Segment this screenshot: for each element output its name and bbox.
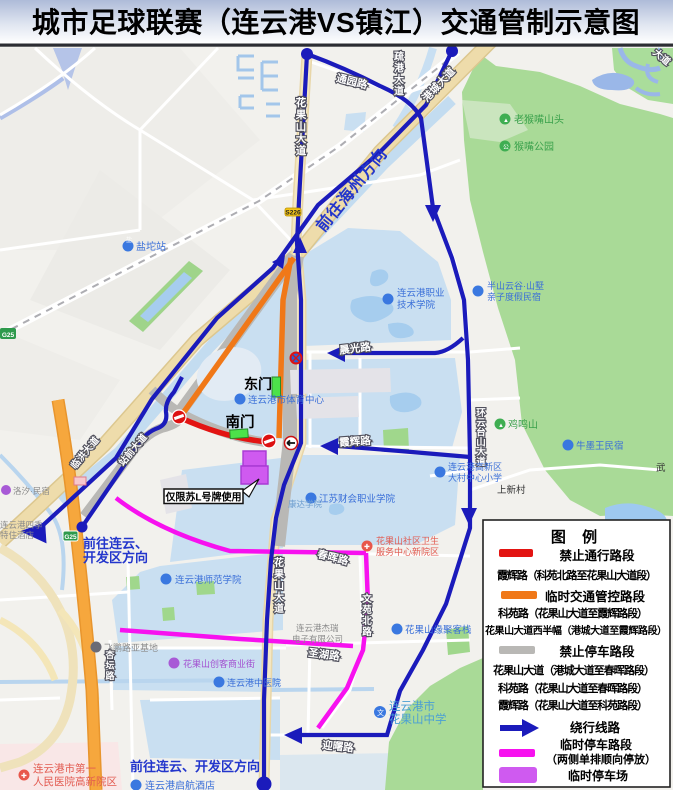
- svg-text:连云港市体育中心: 连云港市体育中心: [248, 394, 325, 406]
- svg-text:盐坨站: 盐坨站: [136, 240, 166, 253]
- svg-text:霞辉路（花果山大道至科苑路段）: 霞辉路（花果山大道至科苑路段）: [498, 698, 648, 712]
- svg-text:霞辉路（科苑北路至花果山大道段）: 霞辉路（科苑北路至花果山大道段）: [497, 568, 657, 582]
- svg-text:禁止通行路段: 禁止通行路段: [559, 548, 635, 563]
- svg-text:花果山创客商业街: 花果山创客商业街: [183, 658, 255, 669]
- svg-text:连云港职业: 连云港职业: [397, 287, 445, 299]
- svg-text:飞鹏路亚基地: 飞鹏路亚基地: [104, 642, 158, 653]
- svg-text:鸡鸣山: 鸡鸣山: [508, 418, 538, 431]
- svg-text:连云港师范学院: 连云港师范学院: [175, 574, 242, 586]
- svg-text:电子有限公司: 电子有限公司: [292, 634, 343, 644]
- svg-text:亲子度假民宿: 亲子度假民宿: [487, 291, 541, 302]
- svg-text:✚: ✚: [364, 543, 370, 551]
- svg-text:武: 武: [656, 462, 666, 474]
- svg-text:S226: S226: [285, 210, 301, 217]
- svg-text:连云港高新区: 连云港高新区: [448, 461, 502, 472]
- svg-text:G25: G25: [2, 332, 15, 339]
- svg-text:牛墨王民宿: 牛墨王民宿: [576, 440, 624, 452]
- svg-text:绕行线路: 绕行线路: [570, 720, 621, 735]
- svg-text:猴嘴公园: 猴嘴公园: [514, 140, 554, 153]
- svg-text:花果山中学: 花果山中学: [389, 712, 447, 726]
- svg-text:连云港启航酒店: 连云港启航酒店: [145, 779, 215, 790]
- svg-text:科苑路（花果山大道至春晖路段）: 科苑路（花果山大道至春晖路段）: [498, 681, 648, 695]
- svg-text:文: 文: [377, 708, 384, 717]
- svg-text:大村中心小学: 大村中心小学: [448, 472, 502, 483]
- svg-text:老猴嘴山头: 老猴嘴山头: [514, 113, 564, 126]
- svg-text:仅限苏L号牌使用: 仅限苏L号牌使用: [164, 491, 241, 504]
- svg-text:花果山大道: 花果山大道: [295, 96, 307, 157]
- svg-text:连云港中医院: 连云港中医院: [227, 677, 281, 688]
- svg-text:半山云谷·山墅: 半山云谷·山墅: [487, 280, 544, 291]
- svg-text:疏港大道: 疏港大道: [394, 50, 405, 98]
- svg-text:盐: 盐: [126, 236, 132, 244]
- svg-text:康达学院: 康达学院: [288, 499, 323, 509]
- svg-text:环云台山大道: 环云台山大道: [476, 408, 486, 468]
- svg-text:特住酒店: 特住酒店: [0, 530, 35, 540]
- svg-text:连云港市: 连云港市: [389, 699, 435, 713]
- svg-text:（两侧单排顺向停放）: （两侧单排顺向停放）: [546, 752, 656, 766]
- svg-text:人民医院高新院区: 人民医院高新院区: [33, 775, 117, 788]
- svg-text:上新村: 上新村: [497, 484, 526, 496]
- svg-text:连云港市第一: 连云港市第一: [33, 762, 96, 775]
- svg-text:临时停车场: 临时停车场: [568, 768, 628, 783]
- svg-text:花果山缘聚客栈: 花果山缘聚客栈: [405, 624, 472, 636]
- svg-text:G25: G25: [64, 534, 77, 541]
- svg-text:东门: 东门: [244, 376, 272, 392]
- svg-text:▲: ▲: [503, 118, 509, 124]
- svg-text:临时停车路段: 临时停车路段: [560, 737, 633, 752]
- svg-text:图 例: 图 例: [551, 528, 603, 546]
- svg-text:南门: 南门: [226, 413, 255, 431]
- svg-text:服务中心新院区: 服务中心新院区: [376, 546, 439, 557]
- svg-text:连云港四季: 连云港四季: [0, 520, 43, 530]
- svg-text:临时交通管控路段: 临时交通管控路段: [545, 589, 646, 604]
- svg-text:开发区方向: 开发区方向: [83, 550, 148, 565]
- svg-text:杏坛路: 杏坛路: [105, 649, 115, 681]
- svg-text:城市足球联赛（连云港VS镇江）交通管制示意图: 城市足球联赛（连云港VS镇江）交通管制示意图: [32, 6, 640, 38]
- svg-text:文苑北路: 文苑北路: [361, 593, 372, 638]
- svg-text:前往连云、开发区方向: 前往连云、开发区方向: [130, 759, 260, 774]
- svg-text:禁止停车路段: 禁止停车路段: [559, 644, 635, 659]
- svg-text:霞辉路: 霞辉路: [339, 434, 372, 449]
- svg-text:花果山社区卫生: 花果山社区卫生: [376, 535, 439, 546]
- svg-text:公: 公: [503, 144, 509, 151]
- svg-text:▲: ▲: [498, 423, 504, 429]
- svg-text:花果山大道西半幅（港城大道至霞辉路段）: 花果山大道西半幅（港城大道至霞辉路段）: [485, 624, 667, 637]
- svg-text:花果山大道（港城大道至春晖路段）: 花果山大道（港城大道至春晖路段）: [493, 663, 655, 677]
- svg-text:江苏财会职业学院: 江苏财会职业学院: [319, 493, 396, 505]
- svg-text:洛汐·民宿: 洛汐·民宿: [13, 486, 50, 496]
- svg-text:连云港杰瑞: 连云港杰瑞: [296, 623, 339, 633]
- svg-text:技术学院: 技术学院: [397, 299, 436, 311]
- svg-text:科苑路（花果山大道至霞辉路段）: 科苑路（花果山大道至霞辉路段）: [498, 606, 648, 620]
- svg-text:前往连云、: 前往连云、: [83, 536, 148, 551]
- svg-text:✚: ✚: [21, 772, 27, 780]
- svg-text:花果山大道: 花果山大道: [273, 556, 285, 615]
